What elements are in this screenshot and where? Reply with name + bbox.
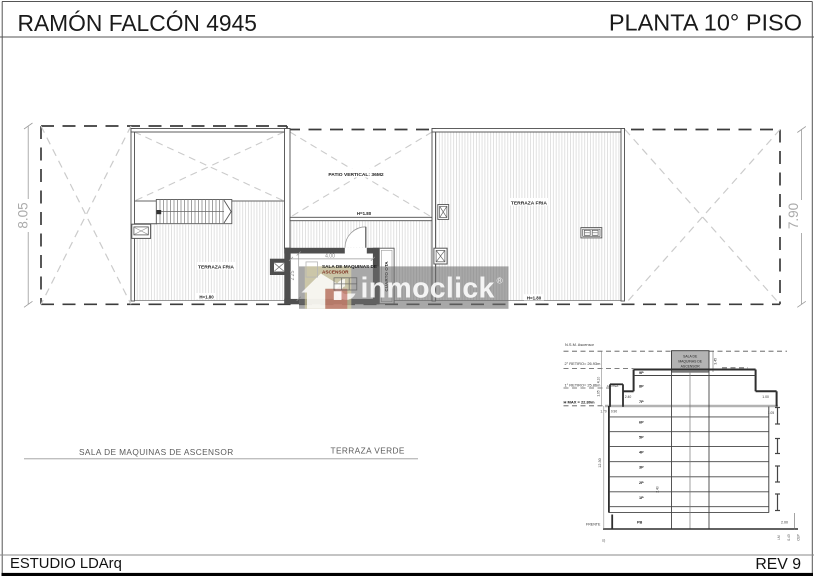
svg-text:7.90: 7.90 — [786, 203, 801, 229]
svg-text:TERRAZA VERDE: TERRAZA VERDE — [331, 446, 405, 456]
svg-text:1.05: 1.05 — [768, 411, 774, 415]
svg-text:9P: 9P — [639, 371, 644, 375]
svg-text:5P: 5P — [639, 436, 644, 440]
svg-text:SALA DE MAQUINAS DE: SALA DE MAQUINAS DE — [322, 264, 377, 269]
svg-text:FRENTE: FRENTE — [586, 523, 601, 527]
svg-text:LM: LM — [777, 535, 781, 540]
svg-text:4P: 4P — [639, 451, 644, 455]
svg-text:ESTUDIO LDArq: ESTUDIO LDArq — [10, 556, 122, 572]
svg-text:PB: PB — [637, 521, 643, 525]
svg-text:2.40: 2.40 — [656, 486, 660, 493]
svg-text:H=1.80: H=1.80 — [357, 211, 372, 216]
svg-text:2.00: 2.00 — [781, 521, 788, 525]
svg-text:SALA DE MAQUINAS DE ASCENSOR: SALA DE MAQUINAS DE ASCENSOR — [79, 447, 234, 457]
svg-text:ASCENSOR: ASCENSOR — [681, 365, 701, 369]
svg-text:N.S.M. Ascensor: N.S.M. Ascensor — [565, 342, 595, 347]
svg-text:1P: 1P — [639, 496, 644, 500]
svg-text:7P: 7P — [639, 400, 644, 404]
svg-text:2P: 2P — [639, 481, 644, 485]
svg-text:inmoclick: inmoclick — [361, 273, 495, 305]
svg-text:H=1.80: H=1.80 — [199, 294, 214, 299]
svg-text:8.05: 8.05 — [16, 202, 31, 228]
svg-text:ASCENSOR: ASCENSOR — [322, 269, 349, 274]
svg-text:SALA DE: SALA DE — [683, 355, 698, 359]
svg-text:2.40: 2.40 — [625, 395, 632, 399]
svg-text:2.25: 2.25 — [290, 270, 296, 280]
svg-text:1° RETIRO= 25.86m: 1° RETIRO= 25.86m — [565, 383, 601, 388]
svg-text:MAQUINAS DE: MAQUINAS DE — [678, 360, 702, 364]
svg-text:2° RETIRO= 26.93m: 2° RETIRO= 26.93m — [565, 361, 601, 366]
svg-text:0.43: 0.43 — [787, 534, 791, 540]
svg-text:REV 9: REV 9 — [755, 556, 801, 573]
svg-text:1.05: 1.05 — [597, 390, 601, 396]
svg-text:®: ® — [497, 276, 504, 286]
svg-text:H=1.80: H=1.80 — [527, 296, 542, 301]
svg-text:AZOTEA: AZOTEA — [607, 384, 619, 388]
svg-text:0.90: 0.90 — [611, 410, 617, 414]
svg-text:RAMÓN FALCÓN 4945: RAMÓN FALCÓN 4945 — [18, 10, 257, 36]
svg-text:3.45: 3.45 — [714, 358, 718, 365]
svg-text:PLANTA 10° PISO: PLANTA 10° PISO — [609, 10, 802, 36]
svg-text:CEP: CEP — [797, 534, 801, 541]
svg-text:8P: 8P — [639, 385, 644, 389]
svg-text:4.00: 4.00 — [325, 253, 335, 259]
svg-text:1.00: 1.00 — [762, 395, 769, 399]
svg-text:TERRAZA FRIA: TERRAZA FRIA — [511, 200, 547, 206]
svg-text:TERRAZA FRIA: TERRAZA FRIA — [198, 264, 234, 270]
svg-text:6P: 6P — [639, 421, 644, 425]
svg-text:4.10: 4.10 — [597, 377, 601, 384]
svg-text:H MAX = 22.80m: H MAX = 22.80m — [564, 399, 595, 404]
svg-text:3P: 3P — [639, 466, 644, 470]
svg-text:12.30: 12.30 — [598, 458, 602, 468]
svg-text:PATIO VERTICAL: 36M2: PATIO VERTICAL: 36M2 — [328, 172, 384, 178]
